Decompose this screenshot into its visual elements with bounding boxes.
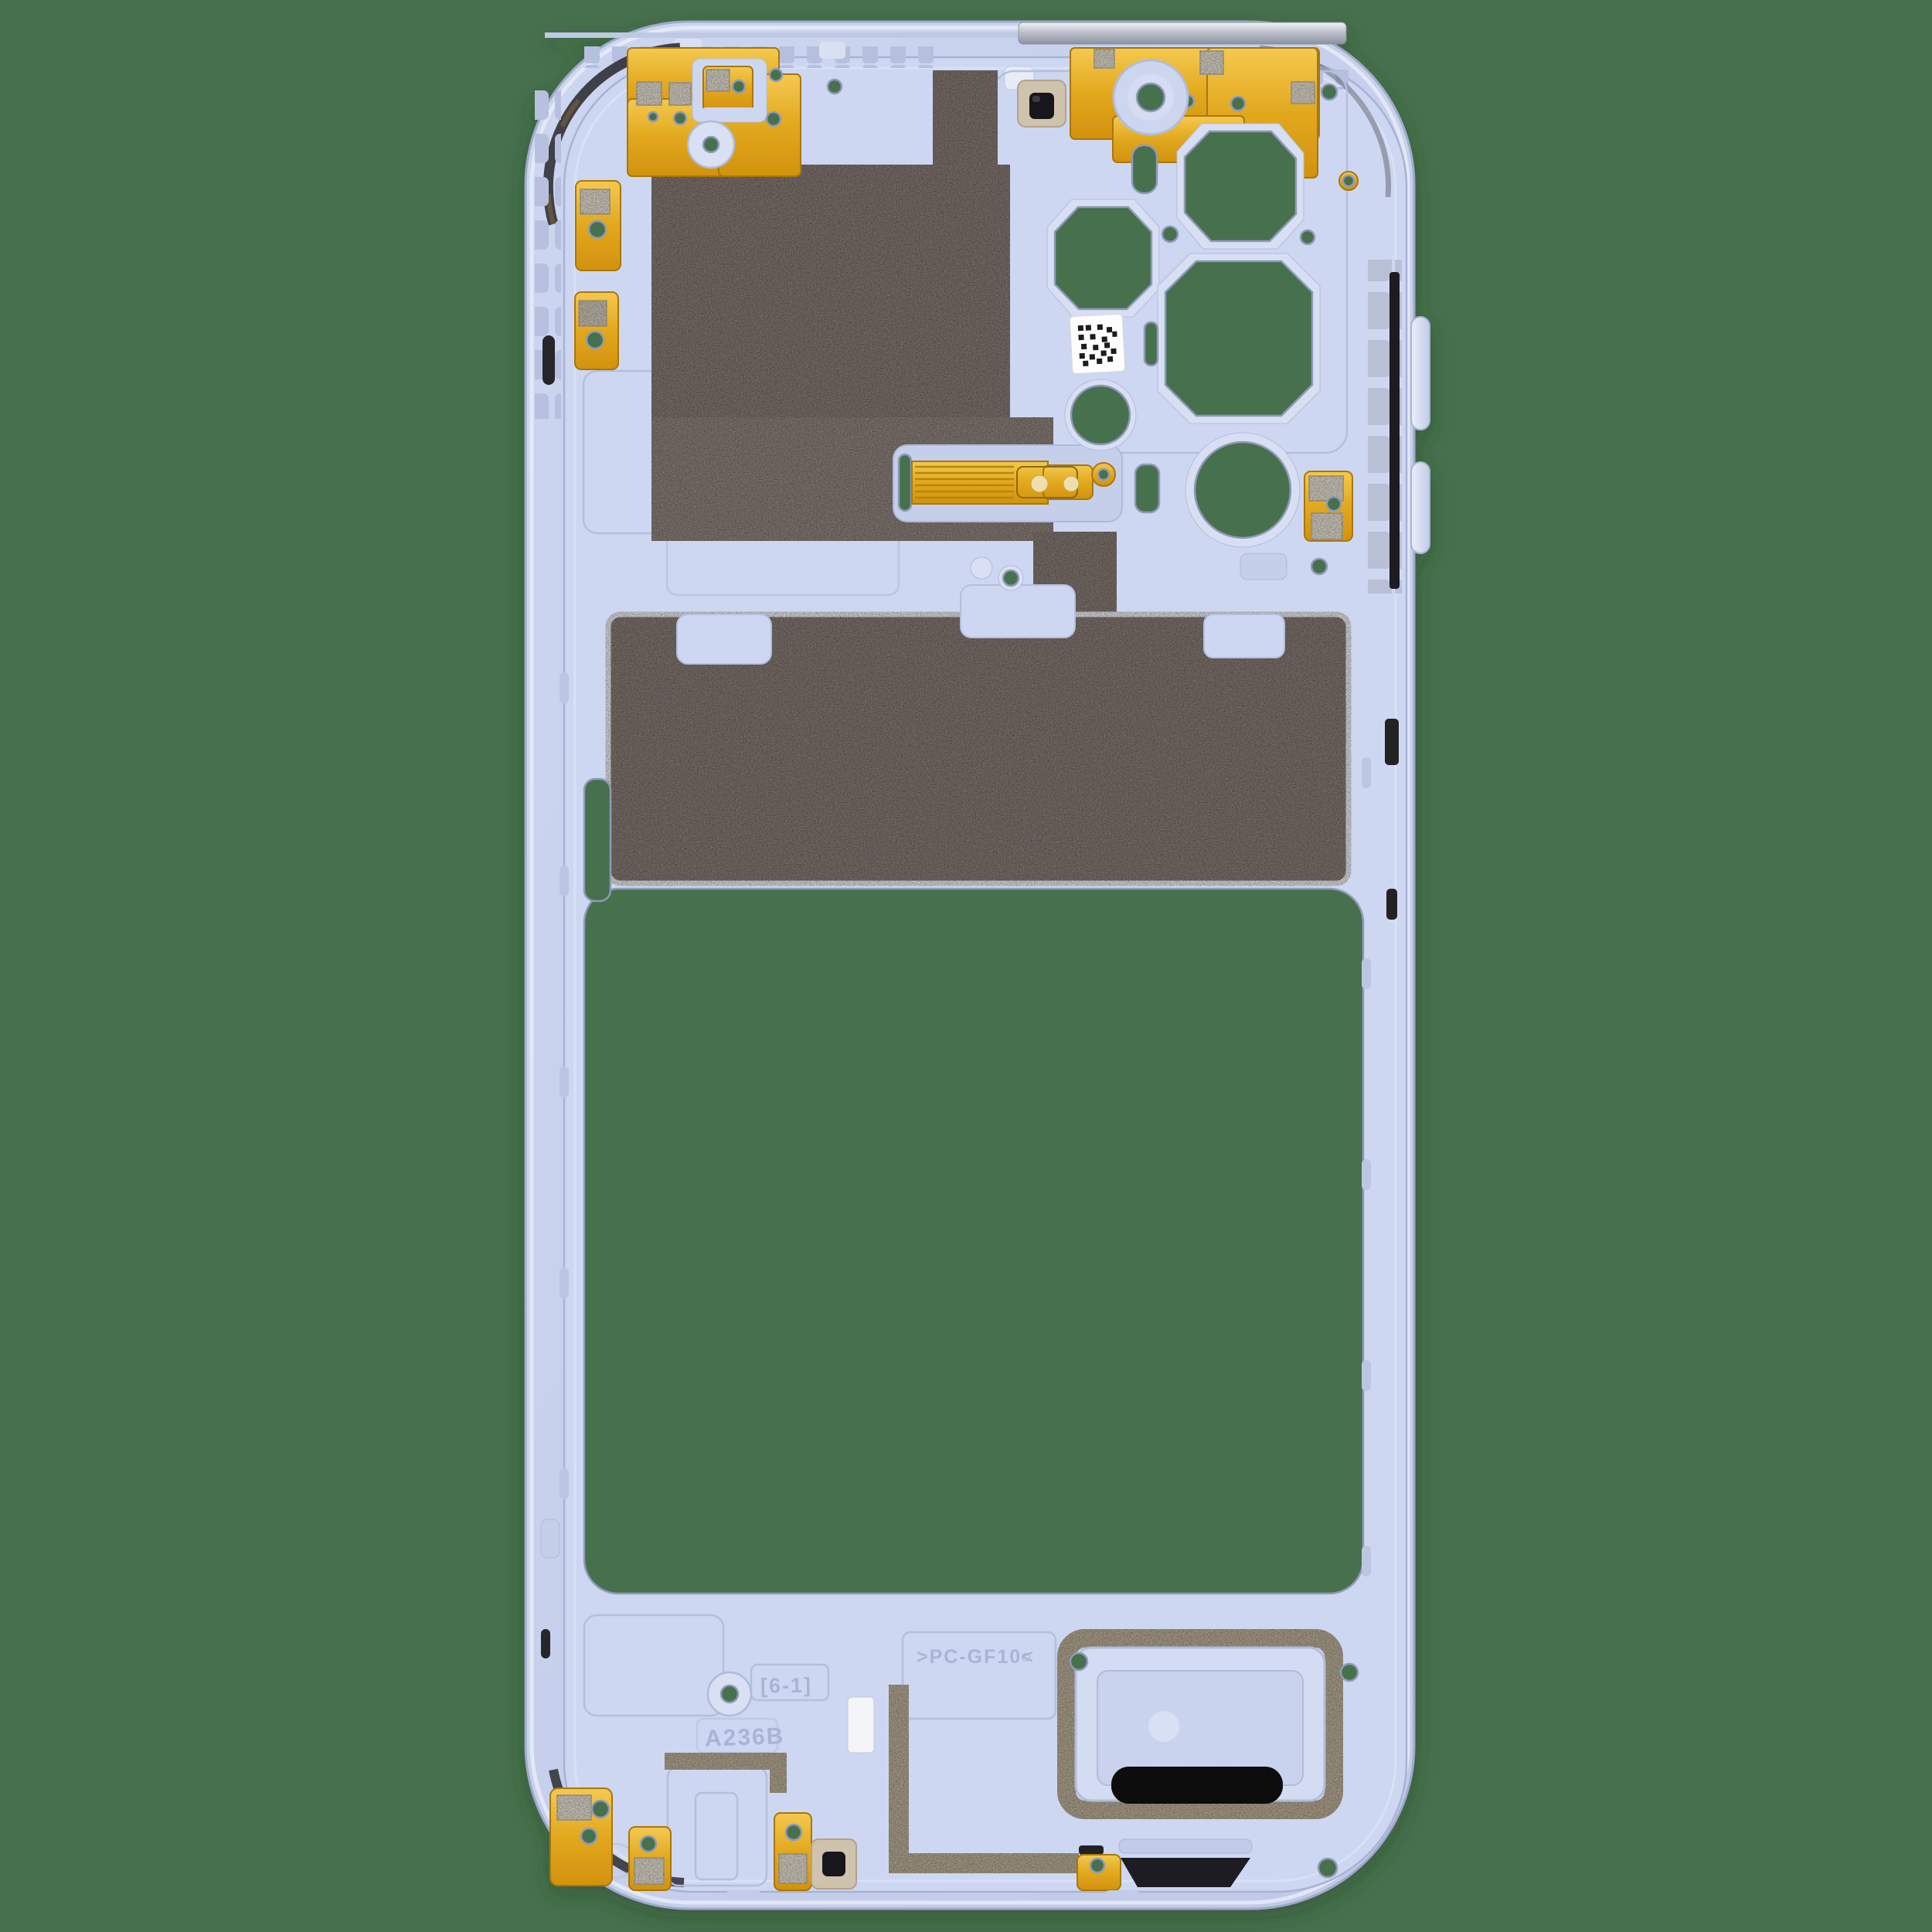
- screw-hole: [1311, 559, 1327, 574]
- antenna-flex-bottom-left: [550, 1788, 612, 1886]
- antenna-flex-left-2: [575, 292, 618, 369]
- rail-clip: [1362, 1546, 1371, 1577]
- marking-material-text: >PC-GF10<: [917, 1646, 1035, 1668]
- button-gasket-strip: [1389, 272, 1400, 589]
- front-camera-window: [1018, 80, 1066, 127]
- rear-camera-cutout-3: [1165, 261, 1312, 416]
- rail-clip: [726, 1890, 760, 1900]
- power-button: [1411, 462, 1430, 553]
- loudspeaker-box: [1076, 1648, 1325, 1804]
- slot-cutout: [1145, 322, 1158, 366]
- top-module-area: [545, 22, 1389, 883]
- metal-shield-block: [848, 1697, 874, 1753]
- volume-button: [1411, 317, 1430, 430]
- recess-slot: [1240, 553, 1287, 580]
- top-edge-seam: [545, 32, 1019, 38]
- screw-hole: [1318, 1859, 1337, 1877]
- rail-clip: [560, 672, 569, 703]
- screw-boss: [971, 557, 992, 579]
- midframe-photo-svg: [6-1] A236B >PC-GF10< ○: [0, 0, 1932, 1932]
- sensor-cutout: [1071, 386, 1130, 444]
- antenna-slot: [541, 1629, 550, 1658]
- rail-clip: [560, 866, 569, 896]
- pad-tab: [677, 614, 771, 664]
- screw-hole: [1301, 230, 1315, 244]
- interconnect-flex-cable: [893, 445, 1122, 522]
- antenna-slot: [543, 335, 555, 385]
- antenna-flex-right: [1304, 471, 1352, 541]
- screw-hole: [1321, 84, 1337, 100]
- antenna-flex-bottom-3: [774, 1813, 811, 1890]
- flash-cutout: [1195, 442, 1291, 538]
- slot-cutout: [1132, 145, 1157, 193]
- antenna-flex-left-1: [576, 181, 621, 270]
- screw-hole: [1070, 1653, 1087, 1670]
- slot-cutout: [1135, 464, 1159, 512]
- rail-clip: [1362, 958, 1371, 989]
- marking-mold-text: [6-1]: [760, 1673, 813, 1697]
- rear-camera-cutout-2: [1055, 207, 1151, 309]
- pad-tab: [1204, 614, 1284, 658]
- microphone-block: [811, 1839, 856, 1889]
- rail-clip: [1105, 1890, 1139, 1900]
- marking-material-symbol: ○: [1020, 1646, 1033, 1668]
- midframe-housing: [6-1] A236B >PC-GF10< ○: [526, 22, 1430, 1909]
- rail-clip: [560, 1468, 569, 1499]
- rail-clip: [1362, 757, 1371, 788]
- speaker-mesh: [1111, 1767, 1283, 1804]
- bottom-speaker-port: [1121, 1858, 1250, 1887]
- screw-hole: [1162, 226, 1178, 242]
- battery-window: [584, 889, 1363, 1594]
- rail-black-clip: [1385, 719, 1399, 765]
- antenna-flex-bottom-2: [629, 1827, 671, 1890]
- rail-clip: [1362, 1159, 1371, 1190]
- marking-model-text: A236B: [704, 1723, 784, 1752]
- frame-clip: [819, 42, 845, 59]
- camera-ring-hole: [1137, 83, 1165, 111]
- rail-clip: [560, 1267, 569, 1298]
- rear-camera-cutout-1: [1185, 131, 1296, 241]
- rail-clip: [560, 1066, 569, 1097]
- pad-tab: [961, 585, 1075, 638]
- product-photo: [6-1] A236B >PC-GF10< ○: [0, 0, 1932, 1932]
- screw-hole: [721, 1685, 738, 1702]
- data-matrix-barcode: [1070, 314, 1125, 373]
- screw-hole: [828, 80, 842, 94]
- screw-hole: [1003, 570, 1019, 586]
- window-notch: [584, 779, 611, 901]
- chrome-strip: [1019, 22, 1346, 44]
- rail-latch: [541, 1519, 560, 1558]
- rail-black-clip: [1386, 889, 1397, 920]
- screw-hole: [1341, 1664, 1358, 1681]
- screw-hole: [703, 137, 719, 152]
- port-ramp: [1119, 1839, 1252, 1853]
- rail-clip: [1362, 1360, 1371, 1391]
